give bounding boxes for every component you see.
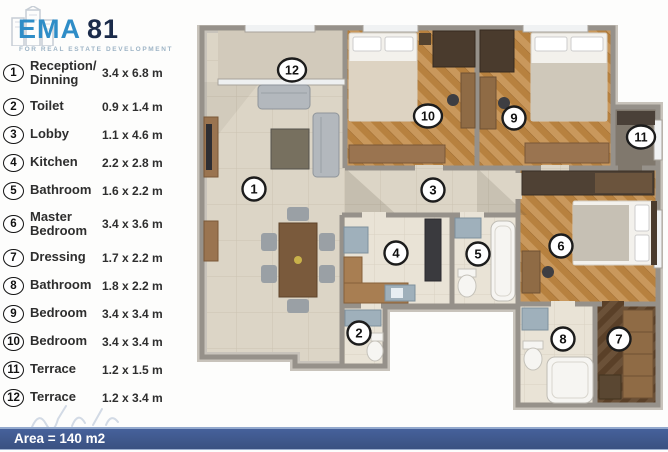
legend-item-7: 7 Dressing 1.7 x 2.2 m: [3, 244, 165, 271]
toilet: [523, 341, 543, 370]
logo-number: 81: [87, 14, 119, 44]
dresser: [525, 143, 609, 163]
svg-text:6: 6: [557, 239, 564, 254]
legend-item-dimensions: 3.4 x 6.8 m: [102, 66, 165, 80]
legend-item-2: 2 Toilet 0.9 x 1.4 m: [3, 93, 165, 120]
legend-item-number: 11: [3, 361, 24, 379]
room-marker-12: 12: [278, 59, 306, 82]
legend-item-dimensions: 3.4 x 3.4 m: [102, 335, 165, 349]
legend-item-dimensions: 1.2 x 1.5 m: [102, 363, 165, 377]
bed: [573, 201, 657, 265]
legend-item-number: 5: [3, 182, 24, 200]
legend-item-12: 12 Terrace 1.2 x 3.4 m: [3, 384, 165, 411]
legend-item-6: 6 Master Bedroom 3.4 x 3.6 m: [3, 205, 165, 243]
legend-item-dimensions: 1.7 x 2.2 m: [102, 251, 165, 265]
room-marker-5: 5: [467, 243, 490, 266]
legend-item-name: Bathroom: [30, 183, 102, 197]
legend-item-5: 5 Bathroom 1.6 x 2.2 m: [3, 177, 165, 204]
logo-brand: EMA: [18, 14, 81, 44]
room-marker-2: 2: [348, 322, 371, 345]
svg-text:11: 11: [634, 131, 647, 145]
legend-item-name: Bedroom: [30, 306, 102, 320]
legend-item-number: 9: [3, 305, 24, 323]
logo-text: EMA81: [18, 16, 119, 43]
svg-text:1: 1: [250, 182, 257, 197]
room-marker-1: 1: [243, 178, 266, 201]
room-marker-10: 10: [414, 105, 442, 128]
room-marker-3: 3: [422, 179, 445, 202]
legend-item-number: 2: [3, 98, 24, 116]
svg-text:3: 3: [429, 183, 436, 198]
svg-text:8: 8: [559, 332, 566, 347]
legend-item-name: Lobby: [30, 127, 102, 141]
legend-item-number: 12: [3, 389, 24, 407]
legend-item-name: Dressing: [30, 250, 102, 264]
legend-item-dimensions: 1.1 x 4.6 m: [102, 128, 165, 142]
bathtub: [547, 357, 593, 403]
logo-tagline: FOR REAL ESTATE DEVELOPMENT: [19, 46, 173, 53]
room-marker-11: 11: [627, 126, 655, 149]
legend-item-3: 3 Lobby 1.1 x 4.6 m: [3, 121, 165, 148]
vanity: [455, 218, 481, 238]
svg-text:2: 2: [355, 326, 362, 341]
legend-item-dimensions: 2.2 x 2.8 m: [102, 156, 165, 170]
legend-item-4: 4 Kitchen 2.2 x 2.8 m: [3, 149, 165, 176]
svg-text:4: 4: [392, 246, 400, 261]
room-marker-4: 4: [385, 242, 408, 265]
legend-item-1: 1 Reception/ Dinning 3.4 x 6.8 m: [3, 54, 165, 92]
legend-item-name: Bedroom: [30, 334, 102, 348]
legend-item-dimensions: 3.4 x 3.6 m: [102, 217, 165, 231]
svg-text:5: 5: [474, 247, 481, 262]
legend-item-name: Reception/ Dinning: [30, 59, 102, 88]
legend-item-number: 7: [3, 249, 24, 267]
legend-item-dimensions: 3.4 x 3.4 m: [102, 307, 165, 321]
area-label: Area = 140 m2: [14, 431, 105, 446]
legend-item-number: 8: [3, 277, 24, 295]
page: { "logo": { "brand": "EMA", "number": "8…: [0, 0, 668, 452]
svg-text:9: 9: [510, 111, 517, 126]
svg-text:10: 10: [421, 110, 435, 124]
legend-item-dimensions: 1.8 x 2.2 m: [102, 279, 165, 293]
corner-sofa: [313, 113, 339, 177]
legend-item-11: 11 Terrace 1.2 x 1.5 m: [3, 356, 165, 383]
legend-item-number: 1: [3, 64, 24, 82]
svg-text:12: 12: [285, 64, 299, 78]
legend-item-name: Kitchen: [30, 155, 102, 169]
tv-console: [204, 117, 218, 177]
legend-item-number: 6: [3, 215, 24, 233]
sideboard: [204, 221, 218, 261]
legend-item-dimensions: 0.9 x 1.4 m: [102, 100, 165, 114]
floor-plan: 123456789101112: [165, 25, 665, 425]
legend-item-dimensions: 1.6 x 2.2 m: [102, 184, 165, 198]
room-marker-9: 9: [503, 107, 526, 130]
room-marker-8: 8: [552, 328, 575, 351]
legend-item-name: Bathroom: [30, 278, 102, 292]
legend-item-name: Master Bedroom: [30, 210, 102, 239]
legend-item-number: 3: [3, 126, 24, 144]
legend-item-number: 4: [3, 154, 24, 172]
legend: 1 Reception/ Dinning 3.4 x 6.8 m 2 Toile…: [3, 54, 165, 412]
legend-item-name: Terrace: [30, 362, 102, 376]
legend-item-name: Toilet: [30, 99, 102, 113]
bathtub: [491, 221, 515, 301]
legend-item-number: 10: [3, 333, 24, 351]
legend-item-dimensions: 1.2 x 3.4 m: [102, 391, 165, 405]
logo: EMA81 FOR REAL ESTATE DEVELOPMENT: [8, 6, 178, 54]
legend-item-8: 8 Bathroom 1.8 x 2.2 m: [3, 272, 165, 299]
planter: [617, 111, 655, 125]
vanity: [522, 308, 548, 330]
dresser: [349, 145, 445, 163]
coffee-table: [271, 129, 309, 169]
sofa: [258, 85, 310, 109]
wardrobe: [522, 171, 654, 195]
legend-item-name: Terrace: [30, 390, 102, 404]
room-marker-7: 7: [608, 328, 631, 351]
legend-item-9: 9 Bedroom 3.4 x 3.4 m: [3, 300, 165, 327]
toilet: [458, 269, 476, 297]
svg-text:7: 7: [615, 332, 622, 347]
footer-bar: Area = 140 m2: [0, 427, 668, 450]
legend-item-10: 10 Bedroom 3.4 x 3.4 m: [3, 328, 165, 355]
room-marker-6: 6: [550, 235, 573, 258]
